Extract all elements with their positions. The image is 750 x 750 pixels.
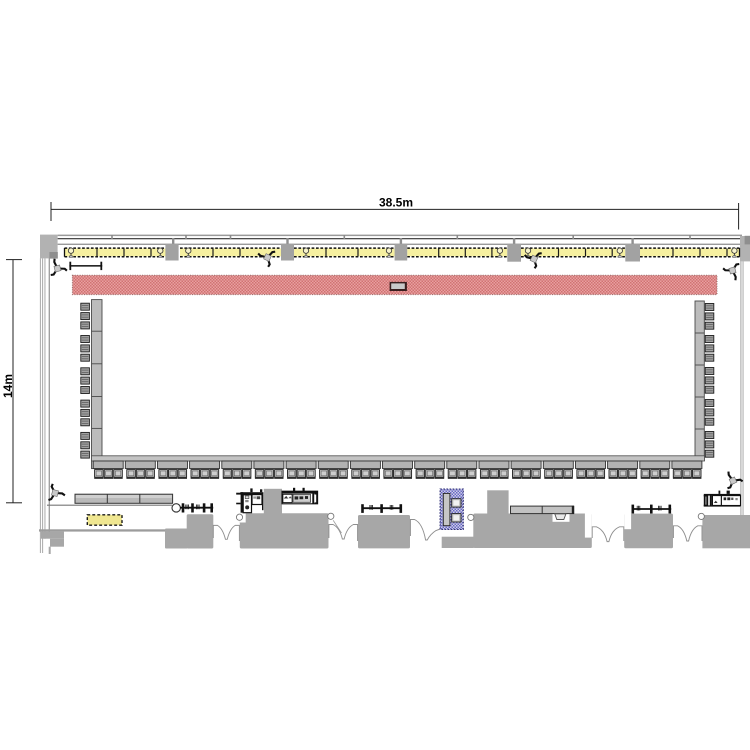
svg-text:14m: 14m xyxy=(1,374,15,398)
svg-text:38.5m: 38.5m xyxy=(379,196,413,210)
